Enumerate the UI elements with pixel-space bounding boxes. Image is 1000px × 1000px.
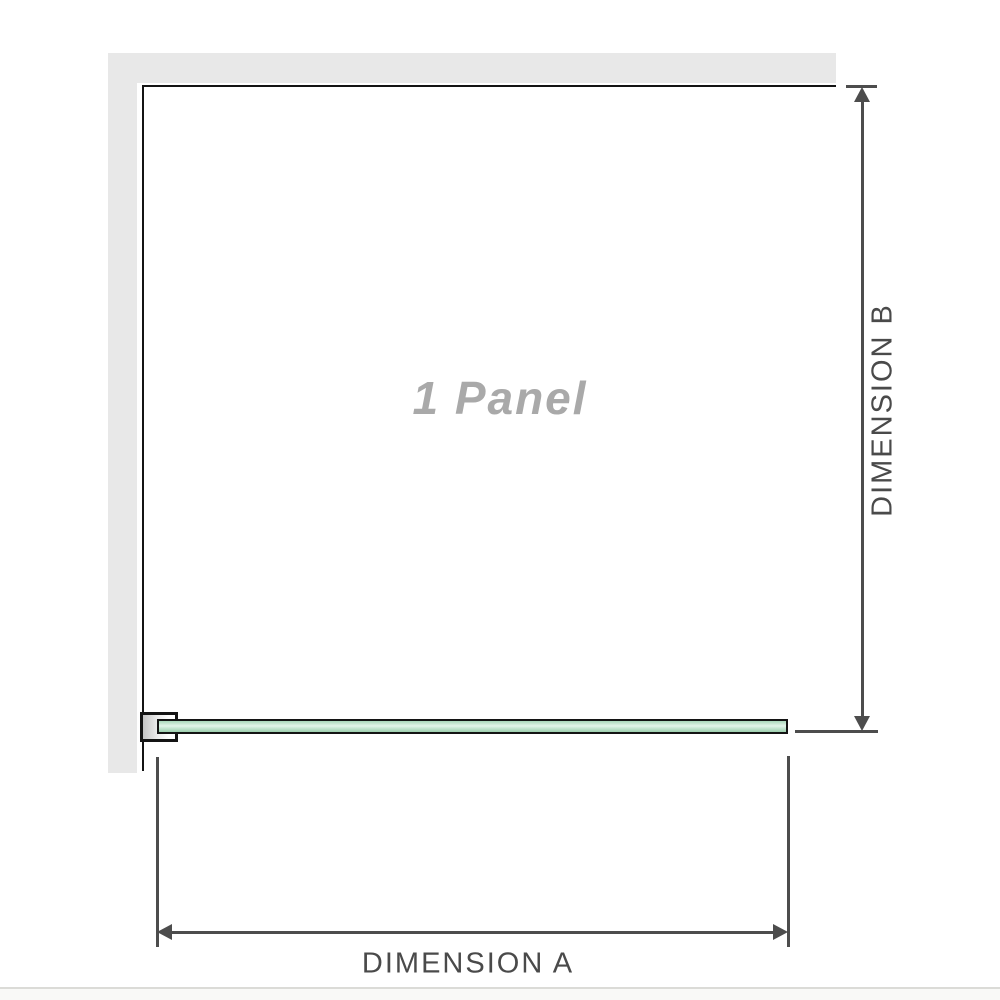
arrow-right-icon (773, 924, 788, 940)
dimension-b-line (861, 100, 864, 718)
dimension-a-right-tick (787, 756, 790, 947)
dimension-b-label: DIMENSION B (867, 303, 900, 517)
panel-count-label: 1 Panel (412, 371, 587, 425)
arrow-up-icon (854, 87, 870, 102)
arrow-left-icon (157, 924, 172, 940)
arrow-down-icon (854, 716, 870, 731)
shower-panel-diagram: 1 Panel DIMENSION B DIMENSION A (0, 0, 1000, 1000)
glass-panel (157, 719, 788, 734)
wall-left (108, 53, 137, 773)
dimension-a-label: DIMENSION A (362, 948, 574, 981)
wall-left-edge-line (142, 85, 144, 771)
dimension-a-left-tick (156, 757, 159, 947)
dimension-a-line (168, 931, 776, 934)
wall-top-edge-line (143, 85, 836, 87)
wall-top (108, 53, 836, 83)
artwork-bottom-strip (0, 989, 1000, 1000)
